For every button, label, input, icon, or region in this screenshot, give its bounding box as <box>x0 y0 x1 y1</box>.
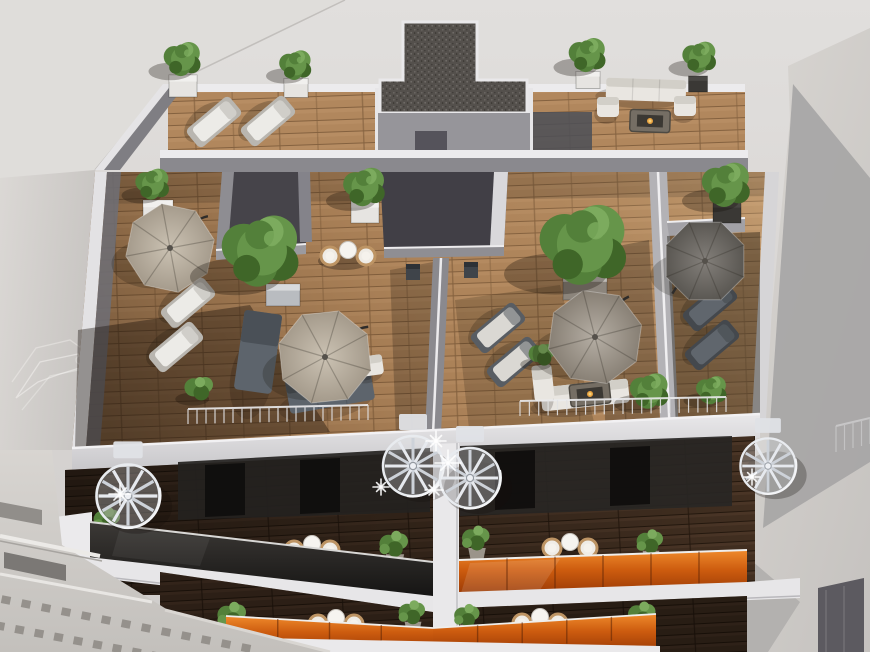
plant-foliage <box>399 612 409 622</box>
plant-foliage <box>462 538 472 548</box>
rattan-chair-cushion <box>326 252 335 261</box>
tree-foliage <box>553 249 583 279</box>
stair-center-pole <box>410 463 417 470</box>
tree-highlight <box>184 49 191 56</box>
plant-foliage <box>409 600 419 610</box>
tree-foliage <box>709 187 726 204</box>
sofa-seam <box>632 79 633 101</box>
planter-pot-rim <box>689 76 708 81</box>
tree-highlight <box>587 222 604 239</box>
rooftop-render-svg <box>0 0 870 652</box>
parasol-hub <box>592 334 598 340</box>
tree-foliage <box>233 255 260 282</box>
stair-landing <box>456 426 484 442</box>
side-chair <box>406 264 420 280</box>
tree-highlight <box>264 231 279 246</box>
tree-highlight <box>297 57 303 63</box>
plant-foliage <box>379 544 389 554</box>
balcony1-opening <box>300 458 340 514</box>
render-canvas <box>0 0 870 652</box>
dentil-block <box>14 625 24 635</box>
chair-back <box>464 262 478 267</box>
stair-center-pole <box>765 463 771 469</box>
tree-foliage <box>349 189 364 204</box>
stair-landing <box>113 441 142 458</box>
dentil-block <box>92 640 102 650</box>
bistro-table <box>340 242 357 259</box>
parasol-hub <box>702 258 708 264</box>
plant-foliage <box>454 615 463 624</box>
flare-core <box>118 492 121 495</box>
tree-highlight <box>651 381 659 389</box>
flare-core <box>446 461 449 464</box>
chair-back <box>406 264 420 269</box>
sofa-back <box>240 310 282 347</box>
stair-landing <box>755 418 781 433</box>
tree-foliage <box>574 57 587 70</box>
outdoor-sofa <box>671 96 696 123</box>
tree-foliage <box>687 59 699 71</box>
tree-foliage <box>169 61 182 74</box>
balcony1-opening <box>205 463 245 517</box>
tree-foliage <box>140 186 152 198</box>
roof-room-a-wall-right <box>298 172 312 242</box>
plant-foliage <box>229 602 239 612</box>
dentil-block <box>73 636 83 646</box>
parasol-hub <box>322 354 328 360</box>
rattan-chair-cushion <box>548 544 557 553</box>
sofa-back <box>674 96 696 104</box>
dentil-block <box>34 629 44 639</box>
tree-highlight <box>589 45 596 52</box>
planter-pot <box>689 76 708 92</box>
tree-highlight <box>701 48 708 55</box>
back-wall-top <box>160 150 748 158</box>
rattan-chair-cushion <box>584 544 593 553</box>
flare-core <box>432 488 435 491</box>
sofa-seam <box>659 79 660 101</box>
back-wall-face <box>160 158 748 172</box>
shrub-foliage <box>195 377 205 387</box>
dentil-block <box>53 632 63 642</box>
balcony1-opening <box>610 446 650 506</box>
tree-highlight <box>366 176 374 184</box>
tree-highlight <box>154 175 161 182</box>
rattan-chair-cushion <box>362 252 371 261</box>
stair-center-pole <box>467 475 474 482</box>
plant-foliage <box>391 531 401 541</box>
outdoor-sofa <box>594 97 619 124</box>
tree-highlight <box>728 172 738 182</box>
parasol-hub <box>167 245 173 251</box>
plant-foliage <box>647 529 657 539</box>
plant-foliage <box>465 604 474 613</box>
stair-landing <box>399 414 427 430</box>
plant-foliage <box>473 526 483 536</box>
tree-highlight <box>713 382 719 388</box>
side-chair <box>464 262 478 278</box>
flare-core <box>379 485 382 488</box>
roof-room-b-interior <box>380 172 508 248</box>
flare-core <box>750 475 753 478</box>
neighbor-right-doorway <box>818 578 864 652</box>
sofa-back <box>597 97 619 105</box>
fire-table <box>630 109 671 132</box>
plant-foliage <box>639 602 649 612</box>
flare-core <box>434 439 437 442</box>
main-roof-back-wall <box>160 150 748 172</box>
plant-foliage <box>637 541 647 551</box>
bistro-table <box>562 534 579 551</box>
tree-foliage <box>284 67 295 78</box>
